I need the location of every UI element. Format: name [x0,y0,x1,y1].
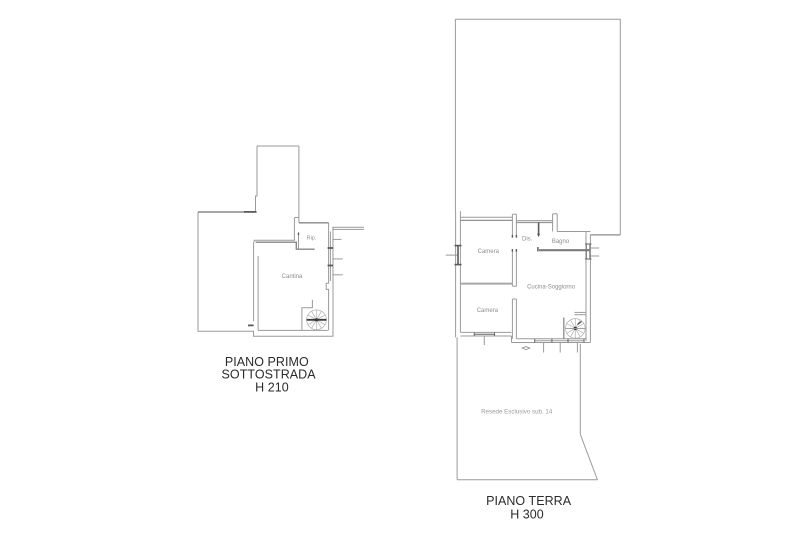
svg-text:PIANO TERRA: PIANO TERRA [486,494,572,508]
svg-text:Cucina-Soggiorno: Cucina-Soggiorno [527,284,576,290]
svg-text:Rip.: Rip. [307,236,317,242]
svg-text:Cantina: Cantina [282,274,303,280]
svg-text:Dis.: Dis. [522,237,533,243]
svg-text:Camera: Camera [478,249,500,255]
svg-text:SOTTOSTRADA: SOTTOSTRADA [222,368,317,382]
svg-text:Resede Esclusivo sub. 14: Resede Esclusivo sub. 14 [481,408,553,415]
svg-text:Camera: Camera [477,308,499,314]
svg-text:Bagno: Bagno [552,239,570,245]
svg-text:H 300: H 300 [510,508,544,522]
svg-text:H 210: H 210 [255,381,289,395]
